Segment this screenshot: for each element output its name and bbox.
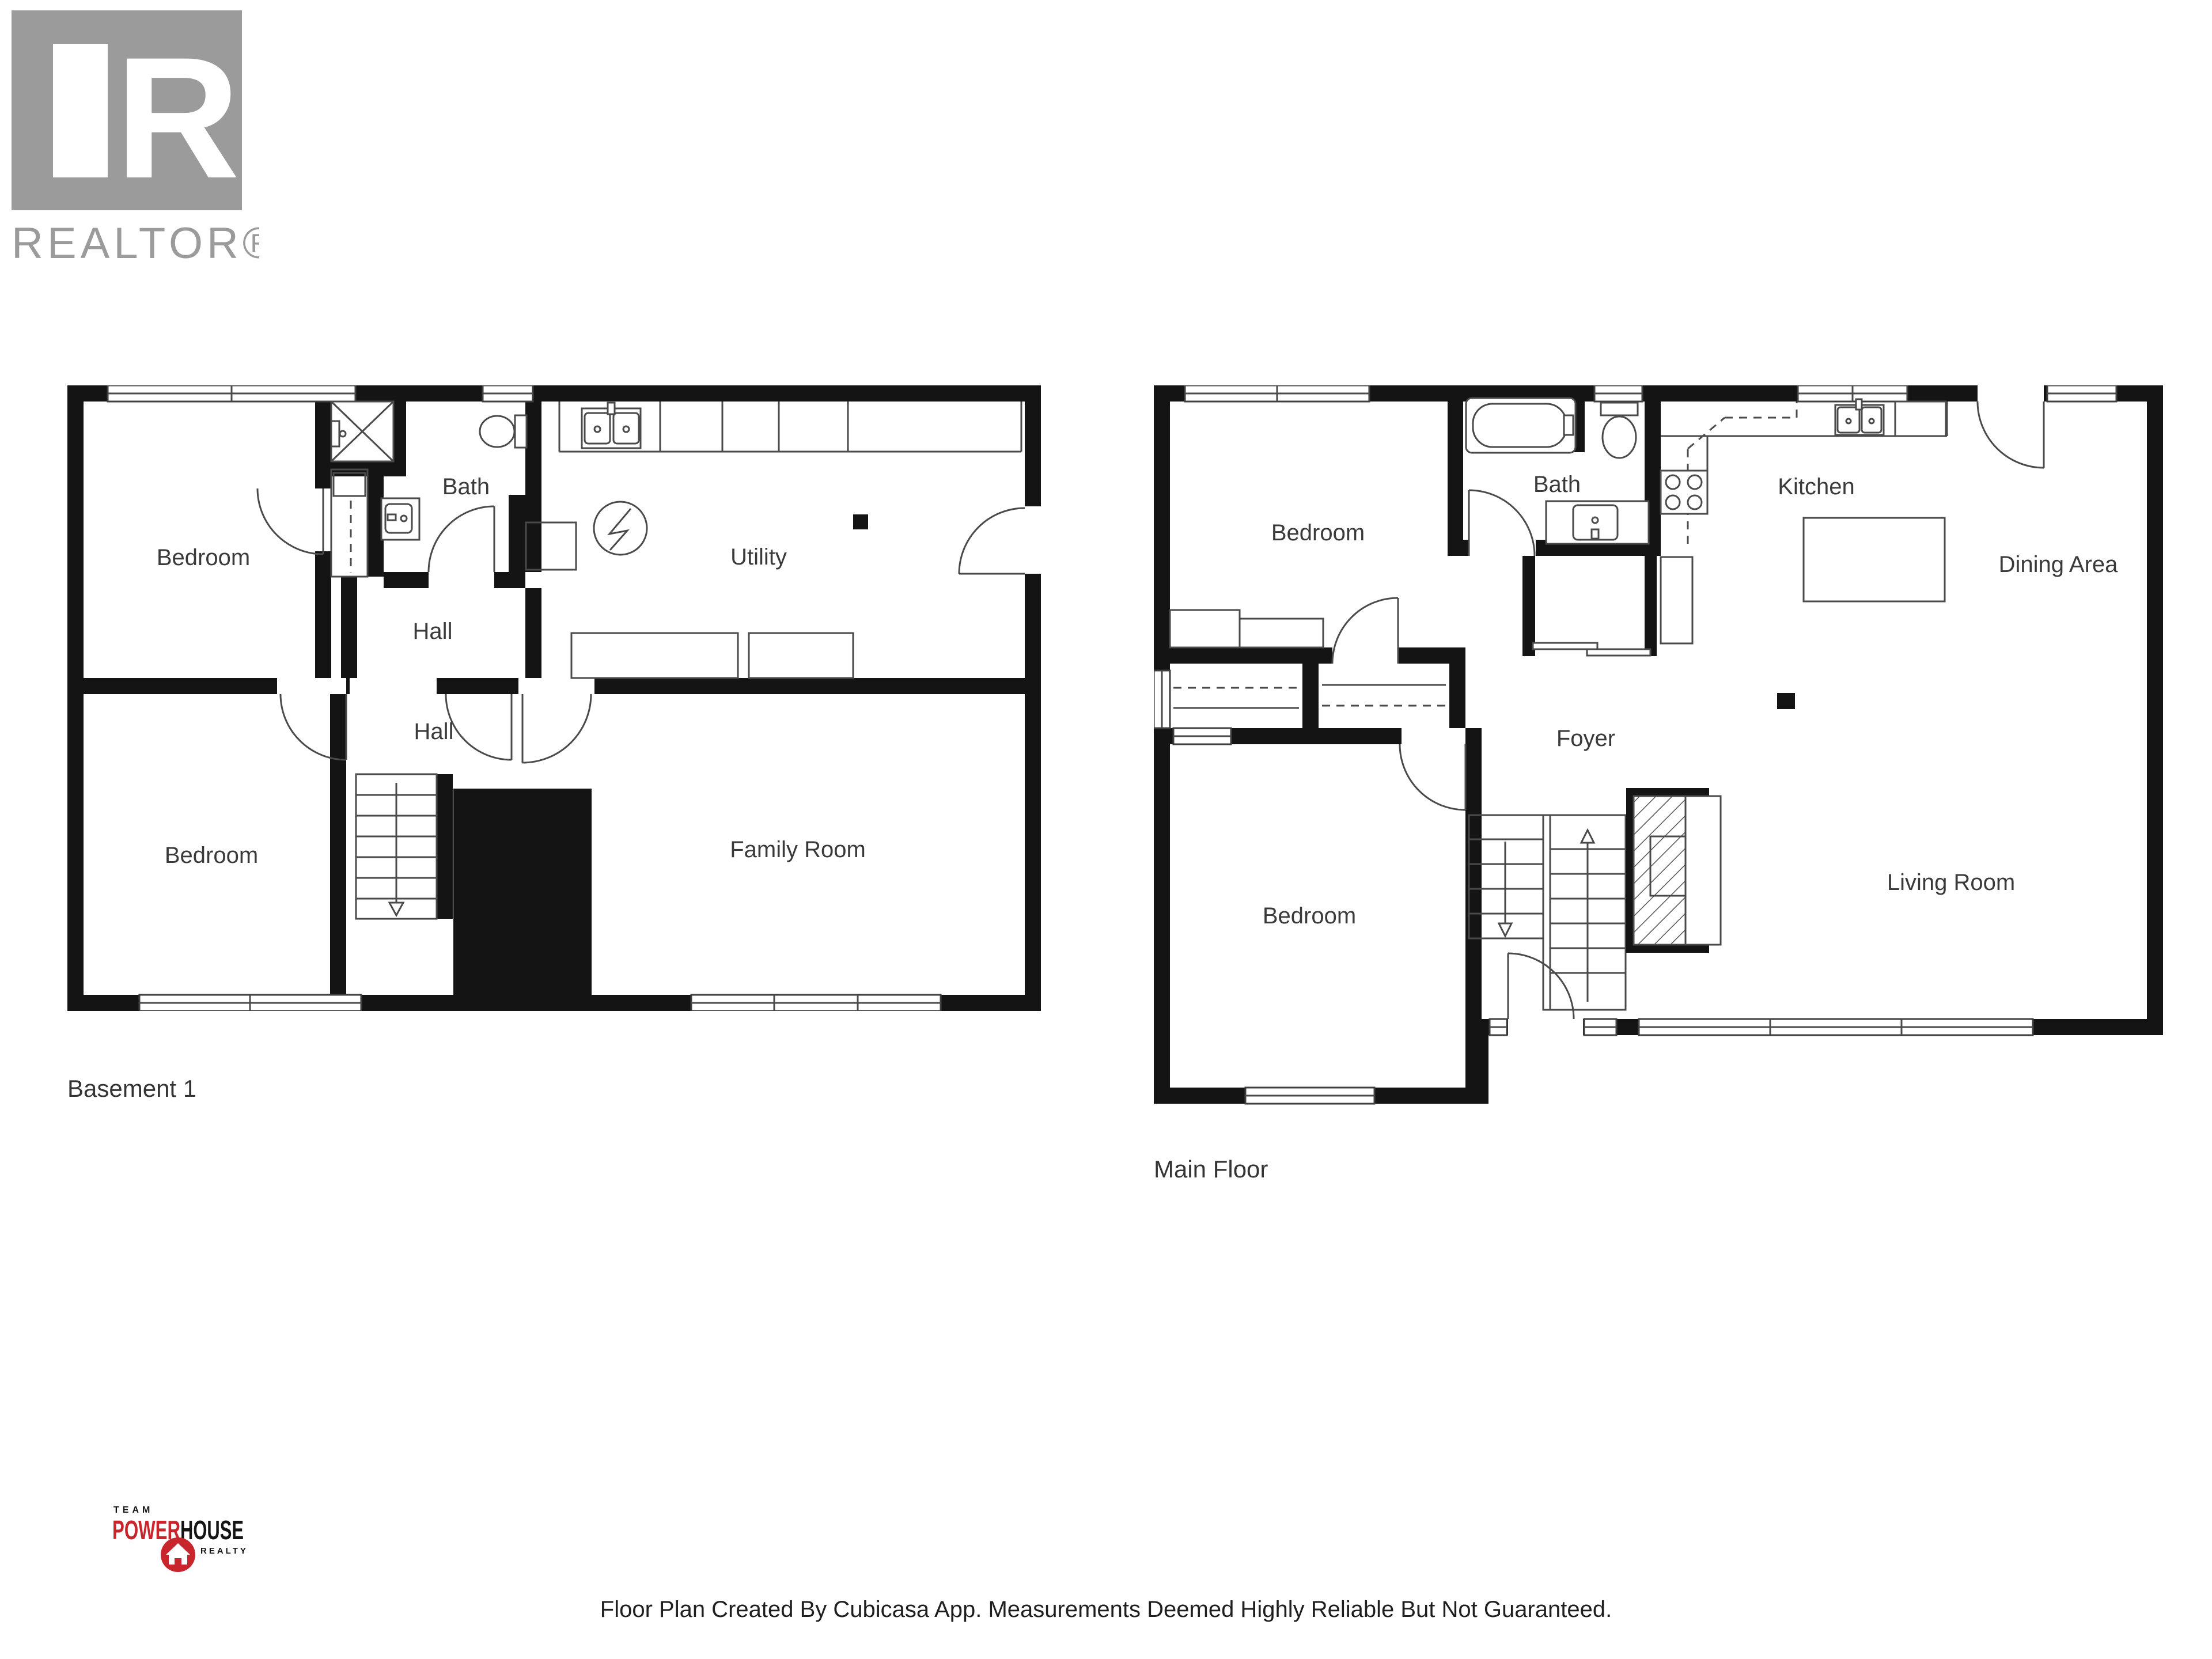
utility-counter [559,402,1021,452]
window [1245,1088,1374,1104]
realtor-logo-text: REALTOR® [12,219,259,264]
room-label-family-room: Family Room [730,837,866,862]
realtor-logo-letter: R [115,21,240,214]
bathtub-icon [1466,398,1575,453]
stair-void [453,789,592,995]
room-label-dining-area: Dining Area [1999,552,2119,577]
footer-disclaimer: Floor Plan Created By Cubicasa App. Meas… [0,1597,2212,1623]
toilet-icon [480,415,527,448]
window [1639,1019,2033,1035]
door-dining-exterior [1978,402,2044,468]
house-icon-door [175,1558,181,1565]
fireplace-icon [1626,788,1721,953]
window [108,385,355,402]
kitchen-sink-icon [1835,399,1884,435]
water-heater-icon [594,502,647,555]
room-label-utility: Utility [730,544,787,570]
realtor-logo-bar [53,44,108,177]
team-powerhouse-realty-logo: TEAM POWER HOUSE REALTY [109,1498,253,1581]
team-logo-house: HOUSE [180,1515,244,1545]
sliding-closet-door [1533,643,1650,656]
room-label-hall: Hall [413,619,453,644]
bedroom-furniture [1170,610,1323,647]
room-label-bath: Bath [442,474,490,499]
door-bath [429,506,494,572]
plan-title-basement: Basement 1 [67,1075,196,1103]
room-label-living-room: Living Room [1887,870,2015,895]
realtor-logo: R REALTOR® [12,10,259,264]
room-label-bedroom-2: Bedroom [1263,903,1356,929]
stairs-icon [356,774,437,919]
utility-equipment [571,633,853,678]
window [1490,1019,1507,1035]
door-bedroom [1332,598,1398,664]
team-logo-realty: REALTY [200,1546,248,1556]
main-windows [1154,385,2116,1104]
closet [331,469,368,577]
shower-icon [331,402,393,461]
post [853,514,868,529]
window [2047,385,2116,402]
room-label-foyer: Foyer [1556,726,1615,751]
post [1777,693,1795,709]
floor-plan-page: R REALTOR® [0,0,2212,1659]
toilet-icon [1601,403,1638,458]
door-bath [1469,490,1535,556]
door-bedroom [257,488,323,554]
stairs-up-arrow [1581,830,1594,843]
floor-plan-basement: Bedroom Bath Hall Utility Hall Bedroom F… [67,385,1041,1011]
basement-interior-walls [84,402,1025,995]
door-utility-exterior [959,508,1025,574]
window [483,385,533,402]
sink-vanity-icon [1546,501,1649,544]
room-label-kitchen: Kitchen [1778,474,1854,499]
door-bedroom-2 [1400,744,1465,810]
sink-vanity-icon [381,498,419,540]
door-family-room [522,694,591,763]
window [1798,385,1907,402]
stove-icon [1661,471,1707,514]
stairs-down-arrow [389,903,403,915]
room-label-bath: Bath [1533,472,1581,497]
room-label-hall-2: Hall [414,719,454,744]
kitchen-island [1804,518,1945,601]
team-logo-team: TEAM [113,1505,153,1515]
room-label-bedroom-2: Bedroom [165,843,258,868]
kitchen-sink-icon [582,403,641,448]
window [139,995,361,1011]
room-label-bedroom: Bedroom [157,545,250,570]
stairs-icon [1469,815,1626,1010]
floor-plan-main: Bedroom Bath Kitchen Dining Area Foyer B… [1154,385,2163,1109]
window [1584,1019,1616,1035]
door-hall [446,694,512,760]
window [1154,671,1170,728]
window [691,995,941,1011]
room-label-bedroom: Bedroom [1271,520,1365,546]
window [1594,385,1642,402]
window [1173,728,1231,744]
window [1185,385,1369,402]
plan-title-main-floor: Main Floor [1154,1156,1268,1183]
stairs-down-arrow [1499,923,1512,936]
